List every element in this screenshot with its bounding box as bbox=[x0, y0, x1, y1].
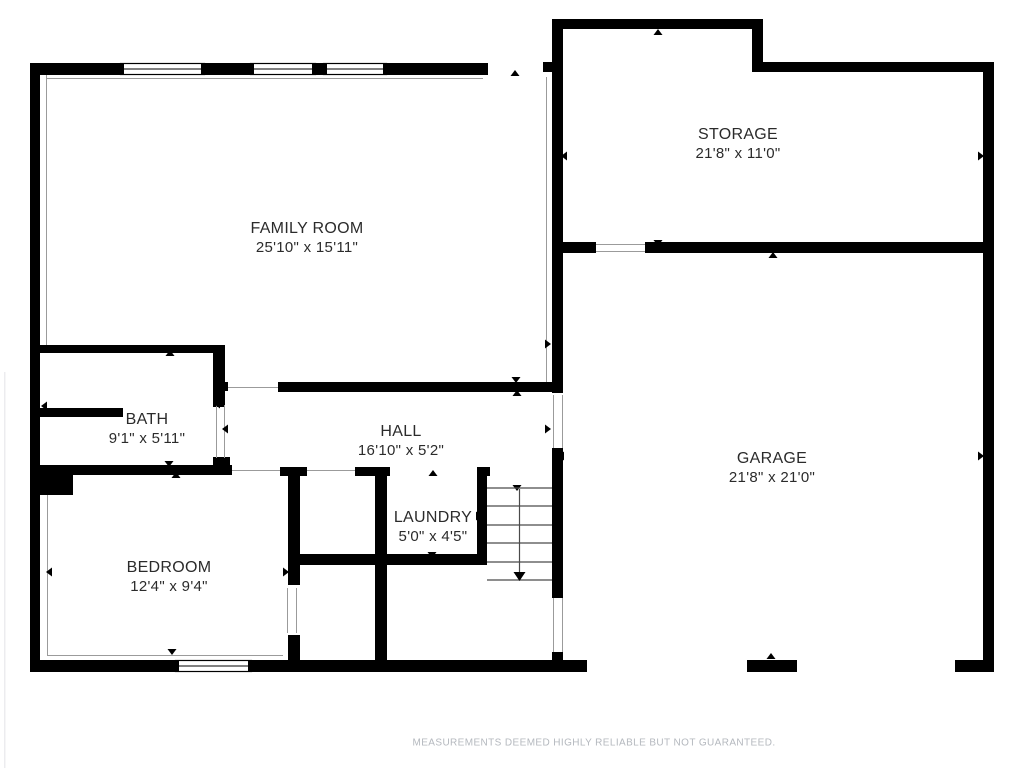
wall-segment bbox=[543, 62, 553, 72]
floorplan-canvas bbox=[0, 0, 1024, 768]
wall-segment bbox=[552, 448, 563, 598]
measurement-arrow-icon bbox=[511, 70, 520, 76]
room-name: HALL bbox=[358, 422, 444, 441]
room-dims: 5'0" x 4'5" bbox=[394, 527, 472, 546]
room-label-hall: HALL 16'10" x 5'2" bbox=[358, 422, 444, 460]
room-label-family-room: FAMILY ROOM 25'10" x 15'11" bbox=[251, 219, 364, 257]
wall-segment bbox=[280, 467, 307, 476]
room-name: GARAGE bbox=[729, 449, 815, 468]
measurement-arrow-icon bbox=[654, 29, 663, 35]
wall-segment bbox=[205, 63, 250, 75]
wall-segment bbox=[477, 467, 490, 476]
disclaimer-text: MEASUREMENTS DEEMED HIGHLY RELIABLE BUT … bbox=[413, 738, 776, 749]
window-cap bbox=[248, 660, 252, 672]
wall-segment bbox=[645, 242, 983, 253]
wall-segment bbox=[30, 345, 225, 353]
wall-segment bbox=[563, 242, 596, 253]
measurement-arrow-icon bbox=[545, 425, 551, 434]
wall-segment bbox=[278, 382, 563, 392]
room-dims: 21'8" x 21'0" bbox=[729, 468, 815, 487]
room-name: LAUNDRY bbox=[394, 508, 472, 527]
room-name: STORAGE bbox=[695, 125, 780, 144]
window-cap bbox=[175, 660, 179, 672]
photo-edge-line bbox=[4, 372, 6, 768]
window-cap bbox=[201, 63, 205, 75]
room-name: FAMILY ROOM bbox=[251, 219, 364, 238]
room-label-storage: STORAGE 21'8" x 11'0" bbox=[695, 125, 780, 163]
wall-segment bbox=[30, 63, 120, 75]
wall-segment bbox=[218, 382, 228, 391]
wall-segment bbox=[30, 63, 40, 672]
wall-segment bbox=[477, 476, 487, 565]
wall-segment bbox=[955, 660, 994, 672]
window-cap bbox=[250, 63, 254, 75]
wall-segment bbox=[552, 19, 563, 393]
wall-segment bbox=[752, 62, 994, 72]
measurement-arrow-icon bbox=[545, 340, 551, 349]
wall-segment bbox=[552, 19, 763, 29]
wall-segment bbox=[747, 660, 797, 672]
wall-segment bbox=[213, 345, 225, 407]
wall-segment bbox=[30, 465, 73, 495]
wall-segment bbox=[252, 660, 587, 672]
wall-segment bbox=[288, 476, 300, 585]
room-dims: 21'8" x 11'0" bbox=[695, 144, 780, 163]
window-cap bbox=[383, 63, 387, 75]
wall-segment bbox=[375, 467, 387, 672]
measurement-arrow-icon bbox=[46, 568, 52, 577]
room-label-bath: BATH 9'1" x 5'11" bbox=[109, 410, 185, 448]
window-cap bbox=[120, 63, 124, 75]
wall-segment bbox=[288, 554, 487, 565]
wall-segment bbox=[387, 63, 488, 75]
wall-segment bbox=[316, 63, 323, 75]
room-dims: 9'1" x 5'11" bbox=[109, 429, 185, 448]
room-dims: 25'10" x 15'11" bbox=[251, 238, 364, 257]
measurement-arrow-icon bbox=[168, 649, 177, 655]
floorplan: FAMILY ROOM 25'10" x 15'11" STORAGE 21'8… bbox=[0, 0, 1024, 768]
room-label-garage: GARAGE 21'8" x 21'0" bbox=[729, 449, 815, 487]
measurement-arrow-icon bbox=[429, 470, 438, 476]
room-dims: 12'4" x 9'4" bbox=[127, 577, 212, 596]
room-name: BEDROOM bbox=[127, 558, 212, 577]
room-label-bedroom: BEDROOM 12'4" x 9'4" bbox=[127, 558, 212, 596]
window-cap bbox=[323, 63, 327, 75]
room-label-laundry: LAUNDRY 5'0" x 4'5" bbox=[394, 508, 472, 546]
room-name: BATH bbox=[109, 410, 185, 429]
room-dims: 16'10" x 5'2" bbox=[358, 441, 444, 460]
wall-segment bbox=[983, 62, 994, 672]
measurement-arrow-icon bbox=[767, 653, 776, 659]
wall-segment bbox=[30, 660, 175, 672]
window-cap bbox=[312, 63, 316, 75]
